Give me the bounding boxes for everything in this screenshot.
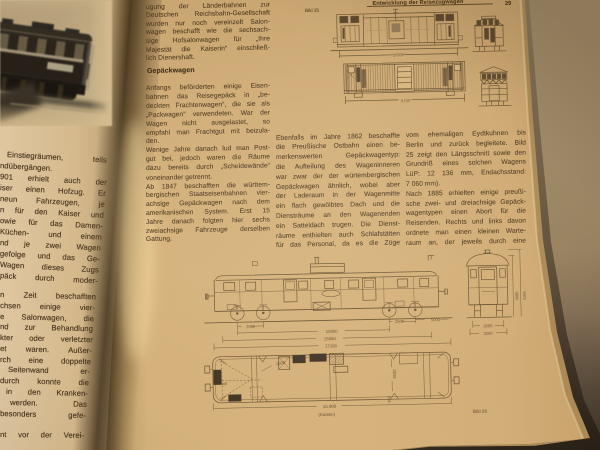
svg-text:9730: 9730 bbox=[401, 98, 411, 103]
svg-text:10930: 10930 bbox=[393, 52, 405, 57]
svg-text:2630: 2630 bbox=[392, 369, 397, 379]
svg-text:4165: 4165 bbox=[522, 291, 527, 301]
svg-text:Bild 26: Bild 26 bbox=[473, 409, 488, 414]
svg-text:15890: 15890 bbox=[324, 336, 337, 341]
svg-text:3685: 3685 bbox=[514, 291, 519, 301]
svg-text:2500: 2500 bbox=[246, 324, 256, 329]
svg-text:850: 850 bbox=[387, 396, 391, 402]
svg-text:2500: 2500 bbox=[395, 319, 405, 324]
svg-text:15.900: 15.900 bbox=[323, 404, 337, 409]
svg-text:900: 900 bbox=[221, 382, 227, 386]
svg-text:3000: 3000 bbox=[483, 323, 493, 328]
svg-text:3250: 3250 bbox=[484, 331, 494, 336]
svg-text:17190: 17190 bbox=[325, 343, 338, 348]
svg-text:5000: 5000 bbox=[431, 317, 441, 322]
svg-text:(Kasten): (Kasten) bbox=[318, 412, 335, 417]
svg-text:10900: 10900 bbox=[326, 329, 339, 334]
svg-text:1500: 1500 bbox=[275, 360, 286, 367]
